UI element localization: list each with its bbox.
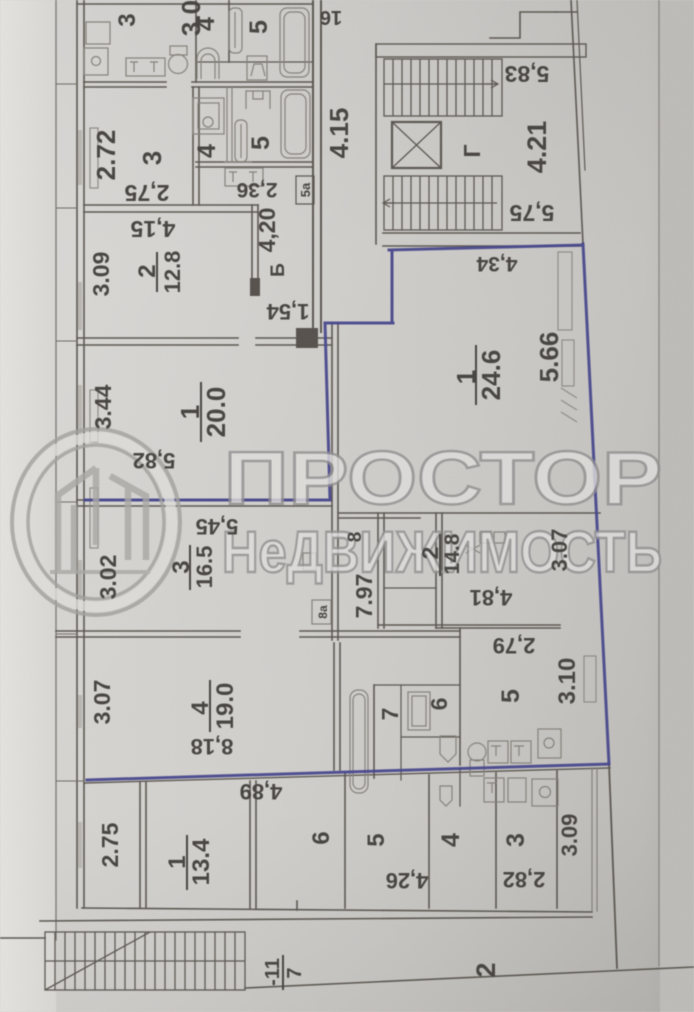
svg-text:4.15: 4.15 (324, 108, 354, 159)
svg-text:5,45: 5,45 (196, 514, 239, 539)
svg-text:3.09: 3.09 (557, 814, 582, 857)
svg-text:6: 6 (308, 831, 335, 844)
svg-text:7: 7 (284, 967, 306, 978)
svg-text:4: 4 (192, 17, 220, 31)
svg-text:5: 5 (245, 20, 273, 34)
svg-text:4.21: 4.21 (522, 121, 552, 174)
svg-text:3.02: 3.02 (95, 555, 121, 600)
svg-text:4: 4 (437, 833, 465, 847)
svg-text:5.66: 5.66 (534, 332, 564, 383)
svg-text:16.5: 16.5 (192, 546, 217, 589)
svg-text:5: 5 (363, 833, 390, 846)
svg-text:19.0: 19.0 (212, 683, 239, 730)
svg-text:4,34: 4,34 (476, 252, 517, 275)
svg-text:8,18: 8,18 (191, 734, 234, 759)
svg-text:13.4: 13.4 (188, 838, 215, 885)
svg-text:3.07: 3.07 (547, 529, 572, 572)
svg-text:7: 7 (377, 708, 403, 721)
svg-text:5,82: 5,82 (133, 448, 176, 473)
svg-text:8: 8 (345, 532, 366, 543)
svg-text:2,36: 2,36 (237, 178, 278, 201)
svg-text:14.8: 14.8 (441, 533, 464, 574)
svg-text:5,75: 5,75 (509, 200, 554, 226)
svg-text:4,89: 4,89 (240, 779, 283, 804)
svg-text:5а: 5а (298, 182, 313, 197)
svg-text:Г: Г (459, 144, 485, 157)
svg-text:3.10: 3.10 (554, 658, 581, 705)
svg-text:3: 3 (137, 151, 167, 165)
svg-text:2.75: 2.75 (97, 822, 123, 867)
svg-text:8а: 8а (316, 605, 330, 619)
svg-text:1,54: 1,54 (266, 299, 310, 324)
svg-text:12.8: 12.8 (160, 251, 185, 294)
svg-text:3: 3 (114, 13, 141, 26)
svg-text:3.09: 3.09 (88, 252, 114, 297)
svg-text:2.72: 2.72 (91, 130, 121, 181)
svg-text:2,82: 2,82 (503, 867, 546, 892)
svg-text:5,83: 5,83 (505, 61, 550, 87)
svg-text:ПРОСТОР: ПРОСТОР (224, 436, 662, 520)
svg-text:4: 4 (193, 144, 221, 158)
svg-text:5: 5 (247, 136, 275, 150)
svg-text:Б: Б (268, 263, 289, 277)
svg-text:-11: -11 (262, 958, 284, 986)
svg-text:3.07: 3.07 (89, 680, 115, 725)
svg-text:7.97: 7.97 (351, 574, 377, 619)
svg-text:20.0: 20.0 (201, 387, 231, 438)
svg-text:16: 16 (320, 6, 342, 28)
svg-text:4,20: 4,20 (254, 208, 280, 253)
svg-text:3.44: 3.44 (90, 384, 116, 429)
svg-text:4,15: 4,15 (130, 216, 175, 242)
svg-text:2,79: 2,79 (493, 633, 536, 658)
svg-text:2: 2 (471, 962, 501, 977)
svg-text:4,81: 4,81 (470, 585, 513, 610)
svg-text:4,26: 4,26 (386, 868, 429, 893)
svg-text:5: 5 (497, 689, 525, 703)
svg-text:24.6: 24.6 (476, 350, 506, 401)
svg-text:3: 3 (502, 833, 530, 847)
svg-text:6: 6 (426, 698, 452, 711)
svg-text:2,75: 2,75 (124, 180, 169, 206)
